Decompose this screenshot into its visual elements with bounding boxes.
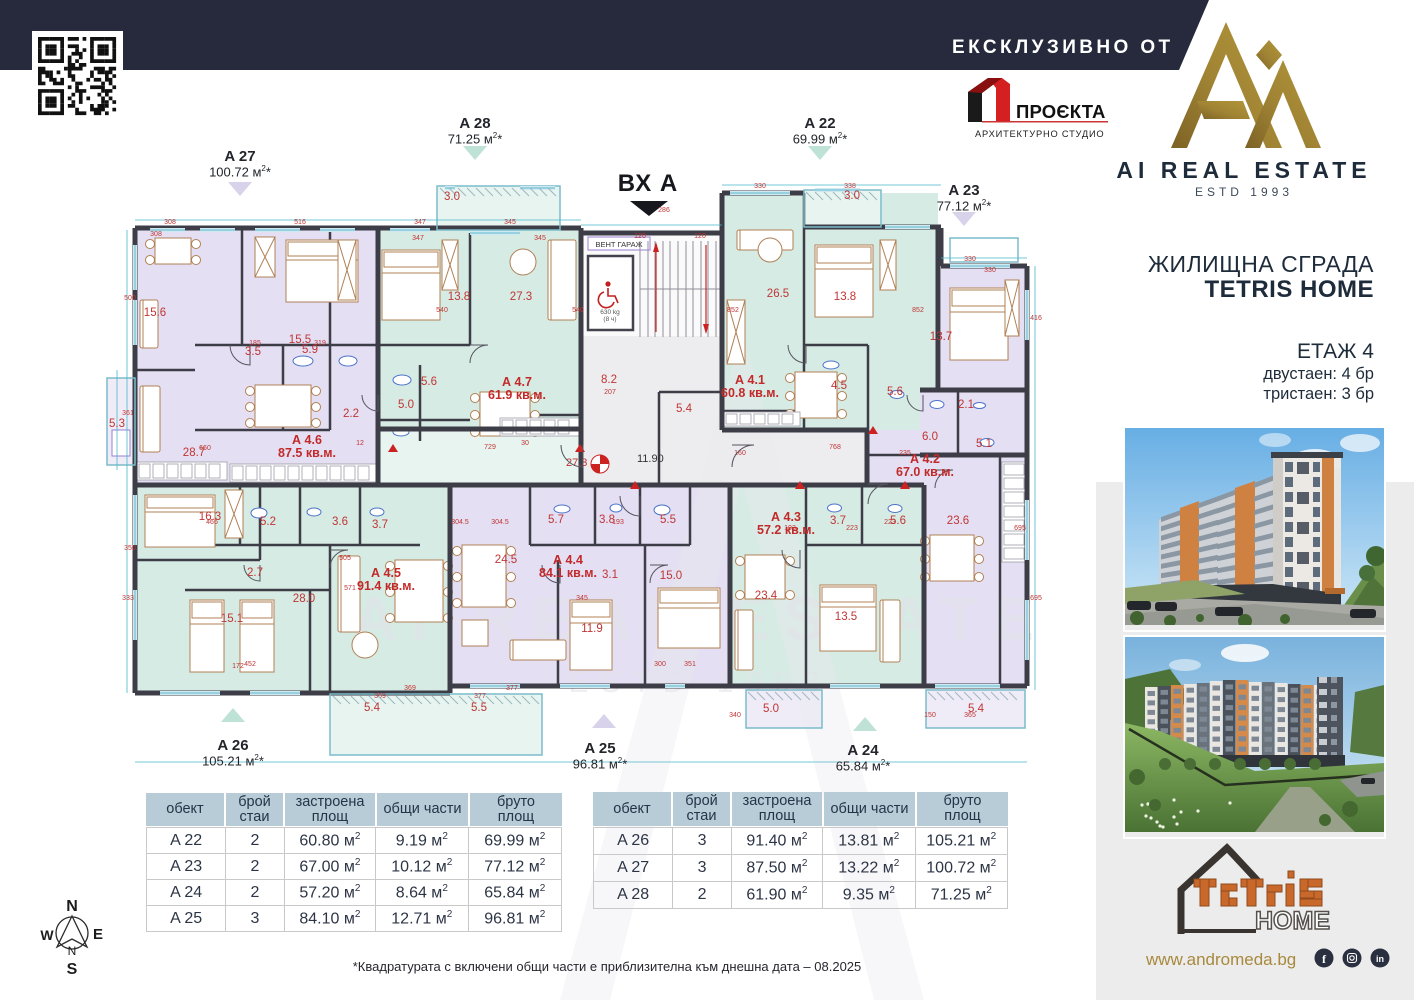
svg-text:W: W	[40, 927, 54, 943]
svg-text:N: N	[66, 898, 78, 915]
svg-text:E: E	[93, 926, 103, 943]
svg-text:N: N	[68, 944, 77, 958]
svg-text:S: S	[67, 961, 78, 978]
